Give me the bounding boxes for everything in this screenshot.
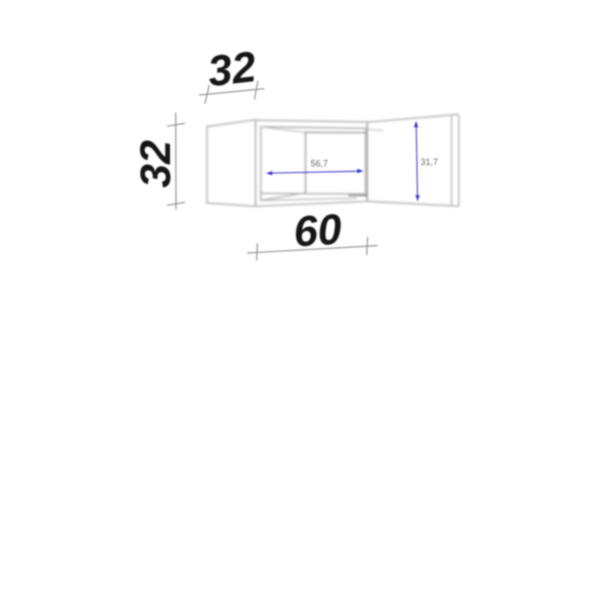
svg-text:32: 32 [132,140,180,188]
svg-text:32: 32 [205,43,258,96]
svg-text:60: 60 [292,206,343,257]
svg-text:56,7: 56,7 [311,159,329,169]
svg-text:31,7: 31,7 [421,157,439,167]
